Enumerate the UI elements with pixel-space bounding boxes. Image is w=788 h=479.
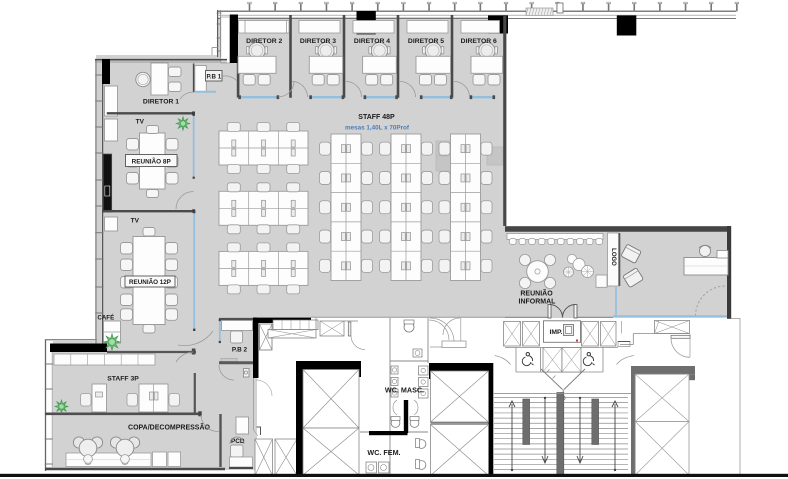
svg-text:STAFF 48P: STAFF 48P — [358, 114, 395, 121]
svg-text:REUNIÃO: REUNIÃO — [520, 288, 553, 297]
svg-text:IMP.: IMP. — [549, 329, 562, 336]
svg-text:STAFF 3P: STAFF 3P — [107, 375, 139, 382]
svg-text:PCD: PCD — [231, 438, 245, 445]
svg-text:DIRETOR 6: DIRETOR 6 — [461, 38, 497, 45]
svg-text:TV: TV — [136, 119, 145, 126]
svg-text:DIRETOR 5: DIRETOR 5 — [408, 38, 444, 45]
svg-text:REUNIÃO 8P: REUNIÃO 8P — [132, 156, 172, 165]
svg-text:DIRETOR 4: DIRETOR 4 — [354, 38, 390, 45]
svg-text:P.B 2: P.B 2 — [232, 347, 248, 354]
svg-text:REUNIÃO 12P: REUNIÃO 12P — [129, 277, 171, 286]
svg-text:CAFÉ: CAFÉ — [97, 314, 114, 322]
svg-text:DIRETOR 3: DIRETOR 3 — [300, 38, 336, 45]
svg-text:WC. FEM.: WC. FEM. — [367, 448, 400, 457]
svg-text:DIRETOR 1: DIRETOR 1 — [143, 99, 179, 106]
svg-text:LOGO: LOGO — [610, 248, 616, 266]
svg-text:P.B 1: P.B 1 — [206, 73, 221, 80]
svg-text:WC. MASC.: WC. MASC. — [385, 385, 424, 394]
svg-text:mesas 1,40L x 70Prof: mesas 1,40L x 70Prof — [345, 125, 410, 132]
svg-text:TV: TV — [131, 217, 140, 224]
svg-text:COPA/DECOMPRESSÃO: COPA/DECOMPRESSÃO — [128, 423, 210, 432]
svg-text:DIRETOR 2: DIRETOR 2 — [246, 38, 282, 45]
